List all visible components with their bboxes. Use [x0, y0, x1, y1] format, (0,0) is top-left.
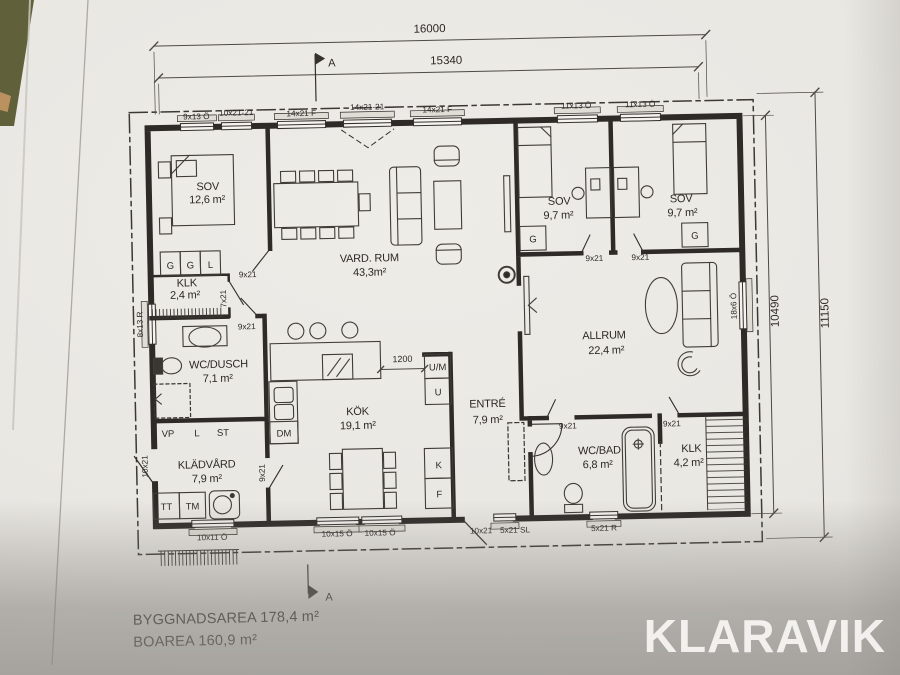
- window-label-top-3: 14x21-21: [350, 102, 385, 112]
- window-label-top-5: 11x13 Ö: [561, 100, 592, 111]
- shower-outline: [154, 383, 191, 418]
- window-label-left-0: 8x13 R: [135, 311, 145, 337]
- byggnadsarea-note: BYGGNADSAREA 178,4 m²: [133, 609, 320, 629]
- window-label-right-0: 18x6 Ö: [728, 293, 739, 320]
- room-wcbad-area: 6,8 m²: [583, 459, 614, 472]
- furniture-sov2: [518, 126, 613, 251]
- floor-plan-drawing: A A: [0, 0, 900, 675]
- klaravik-watermark: KLARAVIK: [644, 609, 886, 663]
- room-allrum-area: 22,4 m²: [588, 344, 625, 357]
- furniture-sov3: [613, 124, 709, 249]
- window-label-top-1: 10x21-21: [219, 108, 254, 118]
- fixture-um: U/M: [429, 362, 447, 373]
- fixture-f: F: [436, 489, 442, 500]
- window-label-bottom-3: 10x21: [470, 526, 493, 535]
- dim-top-outer: 16000: [413, 23, 445, 36]
- fixture-tt: TT: [161, 502, 173, 513]
- room-entre-name: ENTRÉ: [469, 397, 506, 411]
- window-label-top-0: 9x13 Ö: [183, 111, 210, 122]
- fixture-labels: G G L G G VP L ST TT TM DM U/M U K F: [155, 231, 704, 513]
- room-sov1-name: SOV: [196, 181, 220, 193]
- fixture-vp: VP: [162, 429, 175, 440]
- section-marker-top: A: [315, 52, 337, 100]
- closet-g-3: G: [529, 234, 537, 245]
- room-sov3-area: 9,7 m²: [667, 207, 698, 220]
- section-marker-bottom: A: [308, 565, 334, 605]
- room-sov2-area: 9,7 m²: [543, 209, 574, 222]
- entry-canopy-dashed: [342, 129, 394, 148]
- closet-l-2: L: [194, 428, 200, 439]
- window-label-bottom-1: 10x15 Ö: [322, 528, 353, 539]
- area-notes: BYGGNADSAREA 178,4 m² BOAREA 160,9 m²: [133, 609, 320, 651]
- room-wcdusch-area: 7,1 m²: [203, 373, 234, 386]
- window-label-top-4: 14x21 F: [422, 105, 452, 115]
- door-label-klk1: 7x21: [219, 289, 228, 307]
- section-label-top: A: [328, 57, 336, 69]
- dim-kitchen-opening: 1200: [392, 354, 412, 364]
- window-label-top-2: 14x21 F: [286, 109, 316, 119]
- door-label-wcbad: 9x21: [559, 421, 577, 430]
- room-allrum-name: ALLRUM: [582, 329, 626, 342]
- door-label-kladvard: 9x21: [258, 464, 267, 482]
- room-klk1-name: KLK: [177, 277, 198, 289]
- door-label-klk2: 9x21: [663, 419, 681, 428]
- room-sov1-area: 12,6 m²: [189, 194, 226, 207]
- room-klk1-area: 2,4 m²: [170, 289, 201, 302]
- room-entre-area: 7,9 m²: [473, 414, 504, 427]
- fixture-u: U: [435, 387, 442, 398]
- room-klk2-name: KLK: [681, 443, 702, 455]
- closet-g-2: G: [187, 260, 195, 271]
- room-vardrum-name: VARD. RUM: [340, 252, 399, 265]
- exterior-walls: [148, 116, 748, 526]
- room-wcdusch-name: WC/DUSCH: [189, 358, 248, 371]
- dimension-labels: 16000 15340 10490 11150 1200: [385, 15, 832, 364]
- furniture-sov1: [158, 155, 235, 277]
- boarea-note: BOAREA 160,9 m²: [133, 632, 257, 651]
- door-label-sov3: 9x21: [631, 253, 649, 262]
- door-label-wcdusch: 9x21: [238, 322, 256, 331]
- room-kok-area: 19,1 m²: [340, 420, 377, 433]
- section-label-bottom: A: [325, 591, 333, 603]
- symbol-circle: [499, 267, 515, 283]
- door-label-sov2: 9x21: [585, 254, 603, 263]
- door-label-left-1: 10x21: [140, 455, 149, 478]
- window-label-bottom-2: 10x15 Ö: [365, 527, 396, 538]
- window-label-bottom-4: 5x21 SL: [500, 525, 531, 535]
- plan-tilt-group: A A: [120, 15, 838, 651]
- room-kladvard-area: 7,9 m²: [192, 473, 223, 486]
- klk2-shelves: [706, 417, 748, 510]
- room-vardrum-area: 43,3m²: [353, 266, 387, 279]
- room-wcbad-name: WC/BAD: [578, 444, 621, 457]
- window-label-bottom-0: 10x11 Ö: [197, 532, 228, 543]
- window-label-bottom-5: 5x21 R: [591, 524, 617, 534]
- closet-g-4: G: [691, 231, 699, 242]
- furniture-allrum: [524, 262, 719, 379]
- furniture-vardrum: [273, 145, 511, 268]
- fixture-dm: DM: [276, 428, 291, 439]
- window-label-top-6: 11x13 Ö: [625, 99, 656, 110]
- dim-top-inner: 15340: [430, 55, 462, 68]
- room-sov2-name: SOV: [548, 195, 572, 207]
- outside-steps: [158, 549, 238, 566]
- fixture-k: K: [435, 460, 442, 471]
- closet-l-1: L: [208, 260, 214, 271]
- room-kladvard-name: KLÄDVÅRD: [178, 458, 236, 472]
- fixture-tm: TM: [186, 501, 200, 512]
- dim-right-outer: 11150: [819, 298, 832, 329]
- room-klk2-area: 4,2 m²: [674, 457, 705, 470]
- interior-walls: [148, 116, 748, 526]
- fixture-st: ST: [217, 428, 230, 439]
- room-sov3-name: SOV: [670, 193, 694, 205]
- dim-right-inner: 10490: [769, 295, 782, 327]
- door-label-sov1: 9x21: [239, 270, 257, 279]
- closet-g-1: G: [167, 261, 175, 272]
- paper-edges: [13, 0, 88, 665]
- room-kok-name: KÖK: [346, 406, 370, 418]
